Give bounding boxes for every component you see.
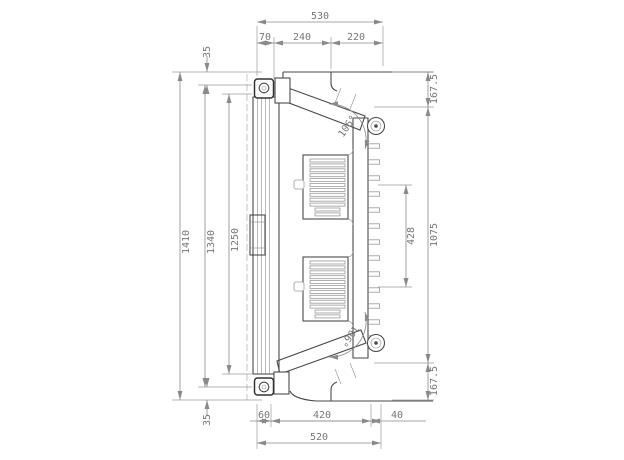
dim-height-door-label: 1250: [230, 228, 241, 252]
top-roller: [368, 118, 385, 135]
heating-element-top: [294, 149, 353, 225]
top-hinge: [255, 78, 291, 103]
dim-top-seg2-label: 240: [293, 32, 311, 43]
technical-drawing-page: 530 70 240 220 35 1410 1340 1250 167.5 1…: [0, 0, 624, 460]
dim-height-outer-label: 1410: [181, 230, 192, 254]
technical-drawing-canvas: 530 70 240 220 35 1410 1340 1250 167.5 1…: [0, 0, 624, 460]
right-wall-fins: [369, 144, 380, 340]
dim-top-seg1-label: 70: [259, 32, 271, 43]
dim-top-seg3-label: 220: [347, 32, 365, 43]
dim-offset-bottom-label: 35: [202, 414, 213, 426]
dim-bottom-seg2-label: 420: [313, 410, 331, 421]
dim-bottom-total-label: 520: [310, 432, 328, 443]
dim-right-top-label: 167.5: [429, 74, 440, 104]
dim-right-middle-label: 1075: [429, 223, 440, 247]
dim-offset-top-label: 35: [202, 46, 213, 58]
dim-bottom-seg1-label: 60: [258, 410, 270, 421]
dimension-annotations: 530 70 240 220 35 1410 1340 1250 167.5 1…: [172, 11, 440, 449]
dim-bottom-seg3-label: 40: [391, 410, 403, 421]
bottom-roller: [368, 335, 385, 352]
right-wall: [353, 118, 368, 358]
dim-top-total-label: 530: [311, 11, 329, 22]
heating-element-bottom: [294, 251, 353, 327]
dim-right-bottom-label: 167.5: [429, 366, 440, 396]
dim-height-frame-label: 1340: [206, 230, 217, 254]
bottom-hinge: [255, 372, 290, 395]
door-leaf: [253, 97, 279, 374]
dim-element-gap-label: 428: [406, 227, 417, 245]
